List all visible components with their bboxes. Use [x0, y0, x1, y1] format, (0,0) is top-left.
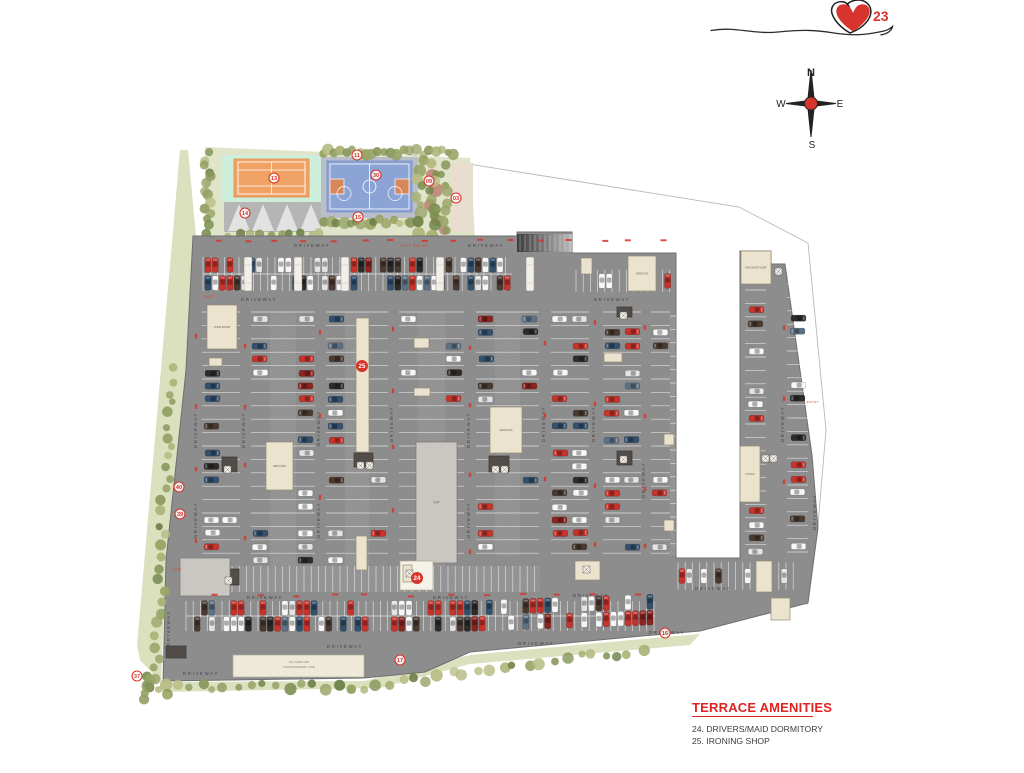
svg-text:03: 03 [453, 196, 459, 202]
svg-text:DRIVEWAY: DRIVEWAY [518, 641, 554, 646]
svg-text:24. DRIVERS/MAID DORMITORY: 24. DRIVERS/MAID DORMITORY [692, 724, 823, 734]
svg-text:KIOSKS: KIOSKS [746, 473, 755, 476]
svg-text:DRIVEWAY: DRIVEWAY [466, 502, 471, 538]
svg-text:SERVICES: SERVICES [499, 428, 512, 432]
svg-text:SERVICES: SERVICES [273, 464, 286, 468]
svg-text:DRIVEWAY: DRIVEWAY [591, 406, 596, 442]
svg-text:W: W [776, 99, 786, 110]
svg-text:DRIVEWAY: DRIVEWAY [241, 412, 246, 448]
svg-text:24: 24 [414, 575, 421, 582]
svg-text:DRIVEWAY: DRIVEWAY [241, 297, 277, 302]
svg-text:PUMP ROOM: PUMP ROOM [214, 325, 230, 329]
svg-text:13: 13 [271, 176, 277, 182]
svg-text:DRIVEWAY: DRIVEWAY [294, 243, 330, 248]
svg-text:DRIVEWAY: DRIVEWAY [466, 412, 471, 448]
svg-text:37: 37 [134, 674, 140, 680]
svg-text:SERVICES: SERVICES [636, 273, 649, 276]
svg-text:DRIVEWAY: DRIVEWAY [389, 406, 394, 442]
svg-text:DRIVEWAY: DRIVEWAY [193, 502, 198, 538]
svg-text:14: 14 [242, 211, 249, 217]
svg-text:11: 11 [354, 153, 360, 159]
svg-text:DRIVEWAY: DRIVEWAY [468, 243, 504, 248]
svg-text:DRIVEWAY: DRIVEWAY [541, 406, 546, 442]
svg-text:DRIVEWAY: DRIVEWAY [780, 406, 785, 442]
svg-text:TRANSFORMER YARD: TRANSFORMER YARD [283, 665, 316, 669]
svg-text:DG YARD AND: DG YARD AND [289, 660, 310, 664]
svg-text:25. IRONING SHOP: 25. IRONING SHOP [692, 736, 770, 746]
svg-text:16: 16 [662, 631, 668, 637]
svg-text:EXIT: EXIT [172, 568, 182, 572]
svg-text:TERRACE AMENITIES: TERRACE AMENITIES [692, 700, 832, 715]
svg-text:DRIVEWAY: DRIVEWAY [247, 595, 283, 600]
svg-text:23: 23 [873, 8, 889, 24]
svg-text:DRIVEWAY: DRIVEWAY [433, 595, 469, 600]
svg-text:DRIVEWAY: DRIVEWAY [193, 412, 198, 448]
svg-text:EXIT ENTRY: EXIT ENTRY [401, 244, 429, 248]
svg-text:DRIVEWAY: DRIVEWAY [641, 462, 646, 498]
svg-text:EXIT: EXIT [204, 295, 214, 299]
svg-text:DRIVEWAY: DRIVEWAY [327, 644, 363, 649]
svg-text:DRIVEWAY: DRIVEWAY [316, 502, 321, 538]
svg-text:DRIVEWAY: DRIVEWAY [183, 671, 219, 676]
svg-text:ENTRY: ENTRY [807, 400, 820, 404]
svg-text:DRIVEWAY: DRIVEWAY [594, 297, 630, 302]
svg-text:STP: STP [433, 501, 439, 505]
svg-text:17: 17 [397, 658, 403, 664]
svg-text:E: E [837, 99, 844, 110]
svg-text:N: N [807, 67, 815, 79]
svg-text:39: 39 [177, 512, 183, 518]
svg-text:DRIVEWAY: DRIVEWAY [166, 610, 171, 646]
svg-text:25: 25 [359, 363, 366, 370]
svg-text:30: 30 [373, 173, 379, 179]
svg-text:40: 40 [176, 485, 182, 491]
svg-text:15: 15 [355, 215, 361, 221]
svg-text:09: 09 [426, 179, 432, 185]
svg-text:DRIVEWAY: DRIVEWAY [695, 586, 731, 591]
svg-text:S: S [809, 140, 816, 151]
svg-text:RAIN WATER SUMP: RAIN WATER SUMP [745, 267, 767, 270]
svg-text:DRIVEWAY: DRIVEWAY [812, 494, 817, 530]
